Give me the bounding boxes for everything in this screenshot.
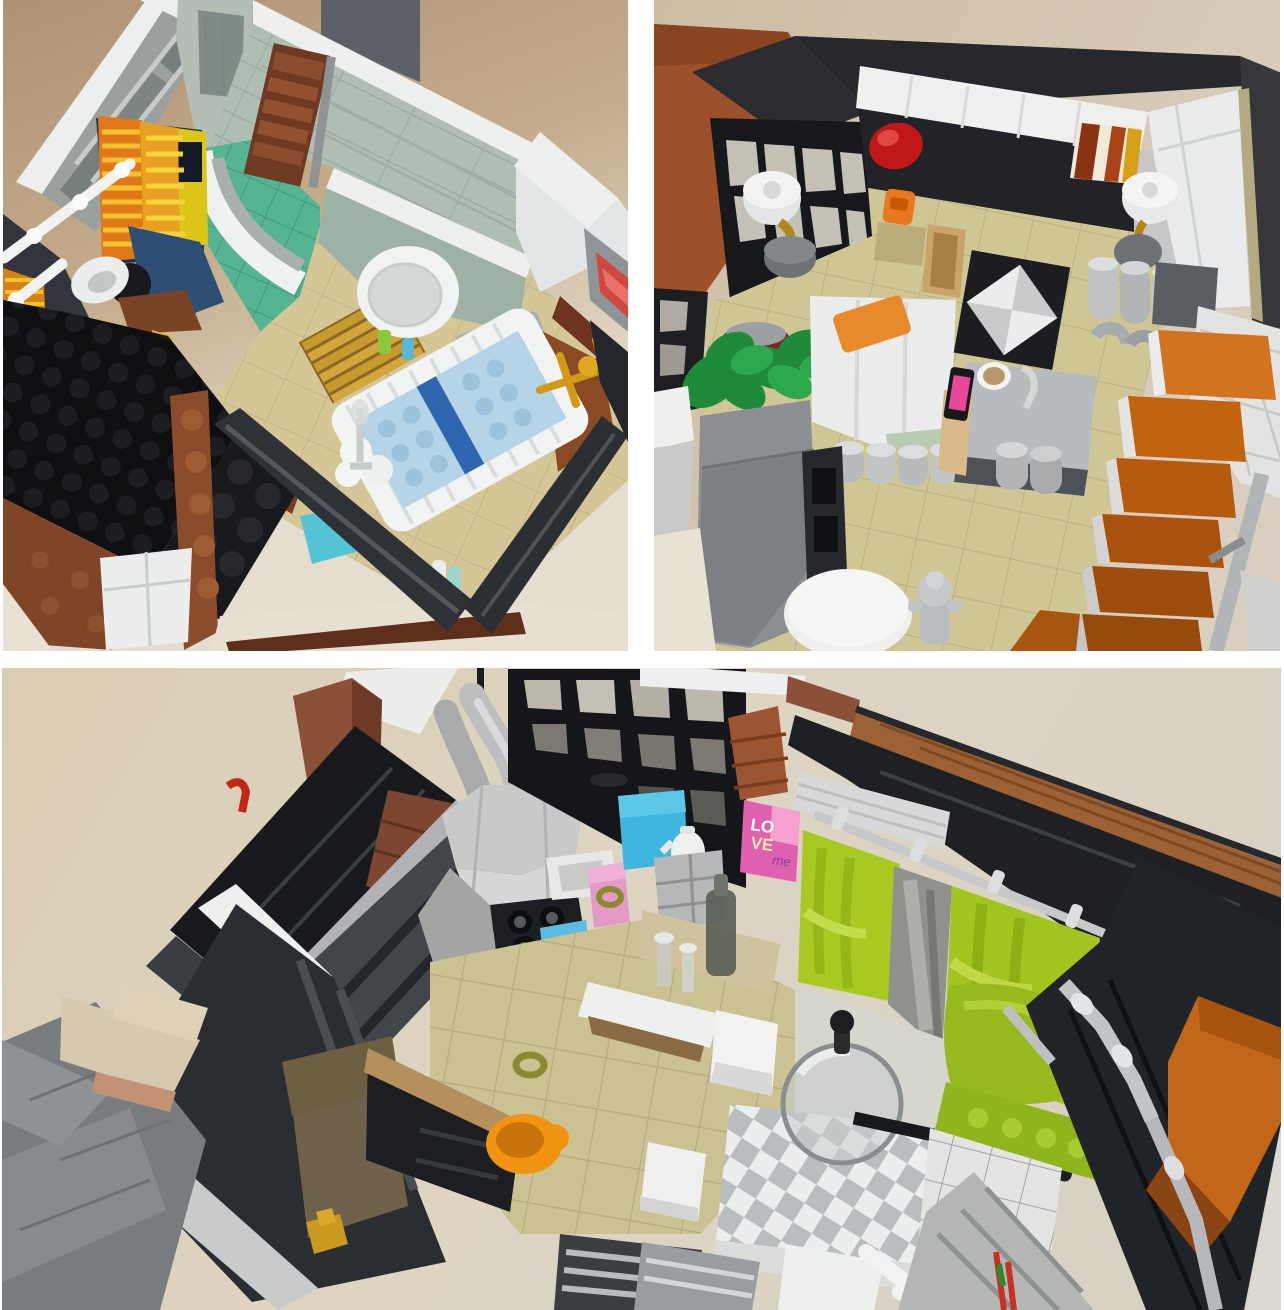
svg-text:me: me: [772, 852, 792, 869]
svg-text:VE: VE: [749, 833, 774, 855]
